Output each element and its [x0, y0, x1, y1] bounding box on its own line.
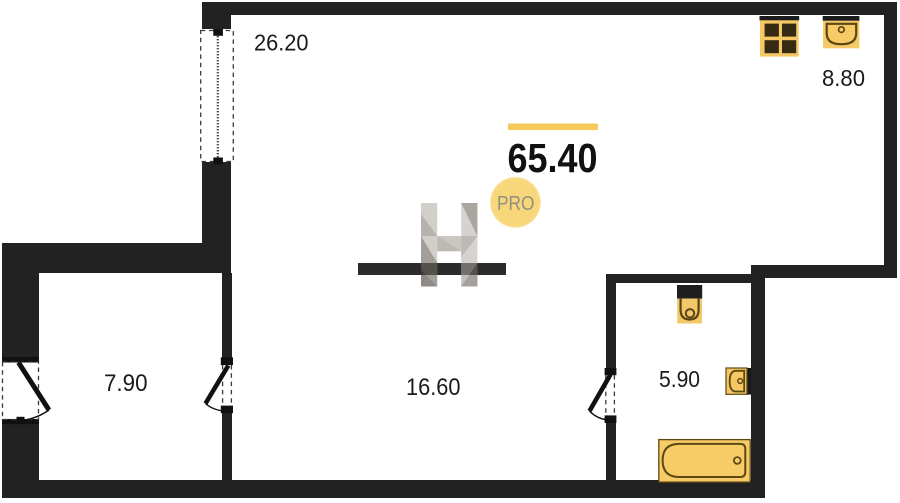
- svg-text:PRO: PRO: [497, 192, 535, 215]
- svg-text:65.40: 65.40: [508, 135, 598, 181]
- svg-text:5.90: 5.90: [659, 366, 700, 392]
- svg-text:16.60: 16.60: [406, 374, 461, 401]
- svg-text:26.20: 26.20: [254, 30, 309, 56]
- svg-text:7.90: 7.90: [104, 370, 148, 397]
- svg-text:8.80: 8.80: [822, 65, 865, 91]
